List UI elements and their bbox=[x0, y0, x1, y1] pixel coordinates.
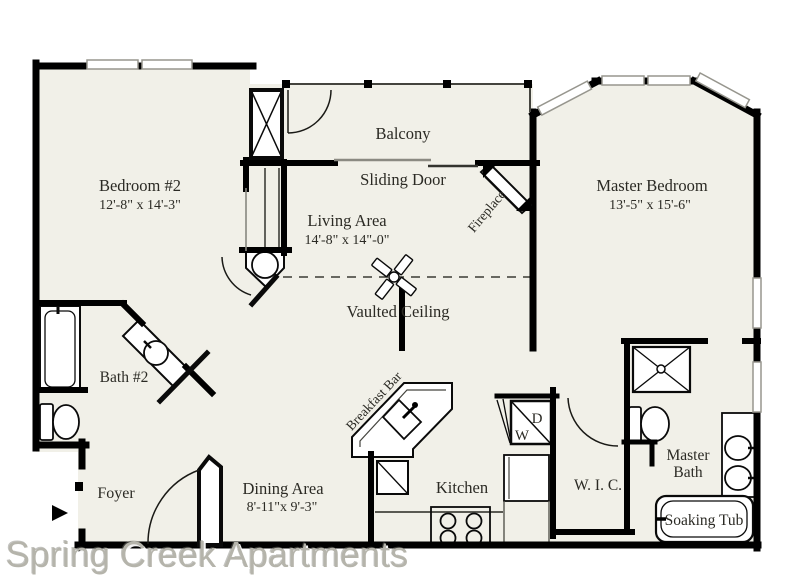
soaking-tub-label: Soaking Tub bbox=[665, 512, 744, 529]
railing-post bbox=[524, 80, 532, 88]
kitchen-sink-faucet-base bbox=[412, 402, 418, 408]
bay-window bbox=[648, 76, 690, 85]
bedroom2-window bbox=[87, 60, 138, 69]
railing-post bbox=[282, 80, 290, 88]
entry-wall-stub bbox=[75, 482, 83, 491]
master-toilet-tank bbox=[629, 407, 641, 442]
master-bedroom-label: Master Bedroom bbox=[596, 176, 708, 195]
foyer-closet-door-leaf bbox=[199, 457, 221, 545]
railing-post bbox=[443, 80, 451, 88]
bedroom2-window bbox=[142, 60, 192, 69]
washer-label: W bbox=[515, 428, 530, 444]
toilet-bowl bbox=[53, 405, 79, 439]
kitchen-label: Kitchen bbox=[436, 478, 488, 497]
wic-label: W. I. C. bbox=[574, 477, 622, 494]
master-bedroom-dims: 13'-5" x 15'-6" bbox=[609, 198, 691, 213]
floor-plan-drawing: Bedroom #2 12'-8" x 14'-3" Balcony Slidi… bbox=[0, 0, 792, 583]
dryer-label: D bbox=[532, 411, 543, 427]
refrigerator bbox=[504, 455, 549, 501]
foyer-label: Foyer bbox=[97, 485, 135, 502]
bay-window bbox=[602, 76, 644, 85]
vaulted-ceiling-label: Vaulted Ceiling bbox=[346, 302, 449, 321]
entry-arrow bbox=[52, 505, 68, 521]
toilet-tank bbox=[40, 404, 53, 440]
master-bath-window bbox=[753, 362, 761, 412]
master-bath-window bbox=[753, 278, 761, 328]
bedroom2-dims: 12'-8" x 14'-3" bbox=[99, 198, 181, 213]
railing-post bbox=[364, 80, 372, 88]
living-area-label: Living Area bbox=[307, 211, 387, 230]
dining-area-label: Dining Area bbox=[242, 479, 324, 498]
master-toilet-bowl bbox=[641, 407, 669, 441]
bathtub bbox=[40, 306, 80, 392]
master-sink bbox=[725, 466, 751, 490]
balcony-label: Balcony bbox=[376, 124, 432, 143]
living-area-dims: 14'-8" x 14"-0" bbox=[305, 233, 390, 248]
bedroom2-label: Bedroom #2 bbox=[99, 176, 181, 195]
dining-area-dims: 8'-11"x 9'-3" bbox=[247, 500, 318, 515]
master-bath-label-line1: Master bbox=[666, 447, 710, 464]
sliding-door-label: Sliding Door bbox=[360, 170, 446, 189]
master-sink bbox=[725, 436, 751, 460]
bath2-label: Bath #2 bbox=[100, 369, 149, 386]
floor-plan: Bedroom #2 12'-8" x 14'-3" Balcony Slidi… bbox=[0, 0, 792, 583]
shower-drain bbox=[657, 365, 665, 373]
hall-corner-sink bbox=[252, 252, 278, 278]
master-bath-label-line2: Bath bbox=[673, 464, 703, 481]
